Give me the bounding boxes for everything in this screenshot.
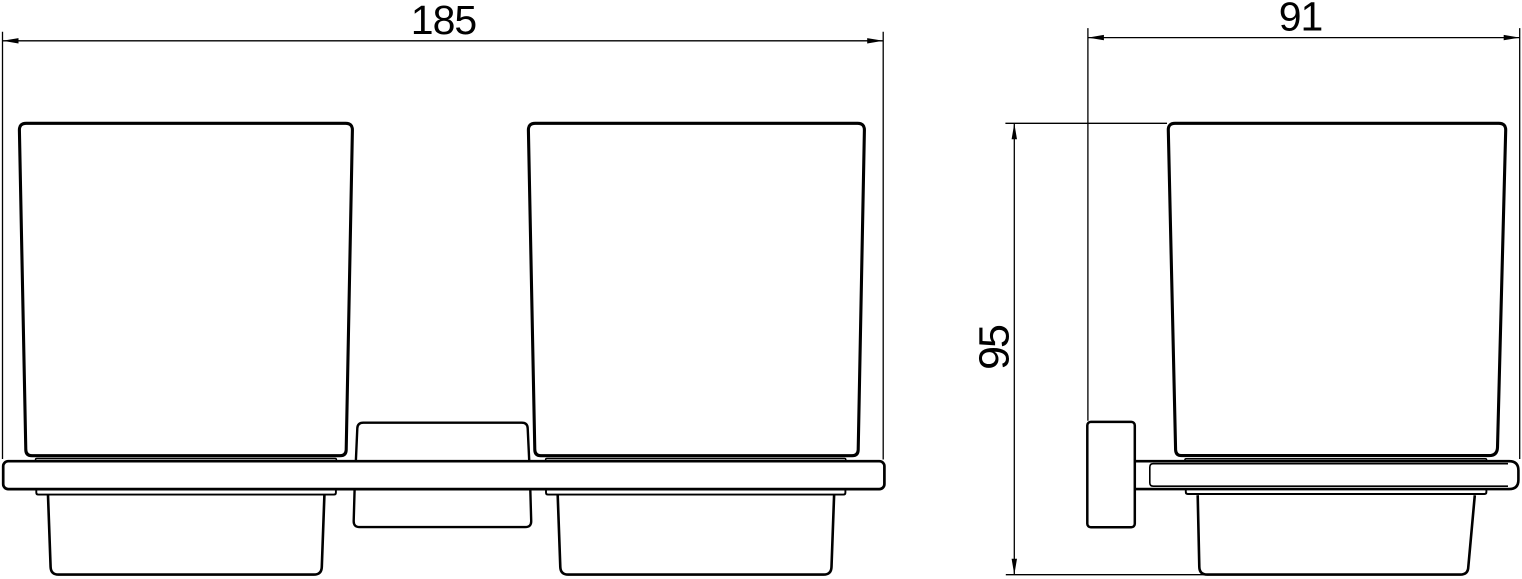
svg-text:91: 91 <box>1279 0 1323 40</box>
svg-text:95: 95 <box>971 325 1019 370</box>
svg-text:185: 185 <box>411 0 477 43</box>
